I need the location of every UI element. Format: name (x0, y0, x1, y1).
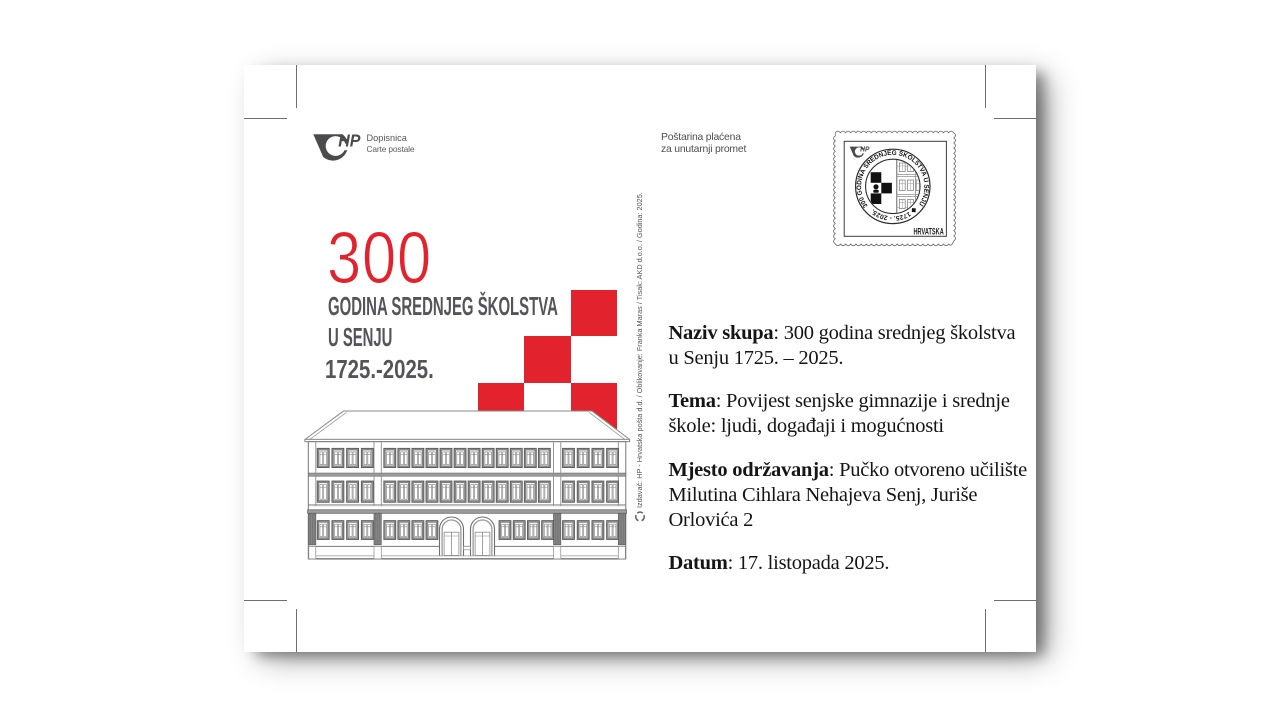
svg-text:HRVATSKA: HRVATSKA (913, 226, 944, 237)
svg-text:HP: HP (338, 131, 361, 151)
